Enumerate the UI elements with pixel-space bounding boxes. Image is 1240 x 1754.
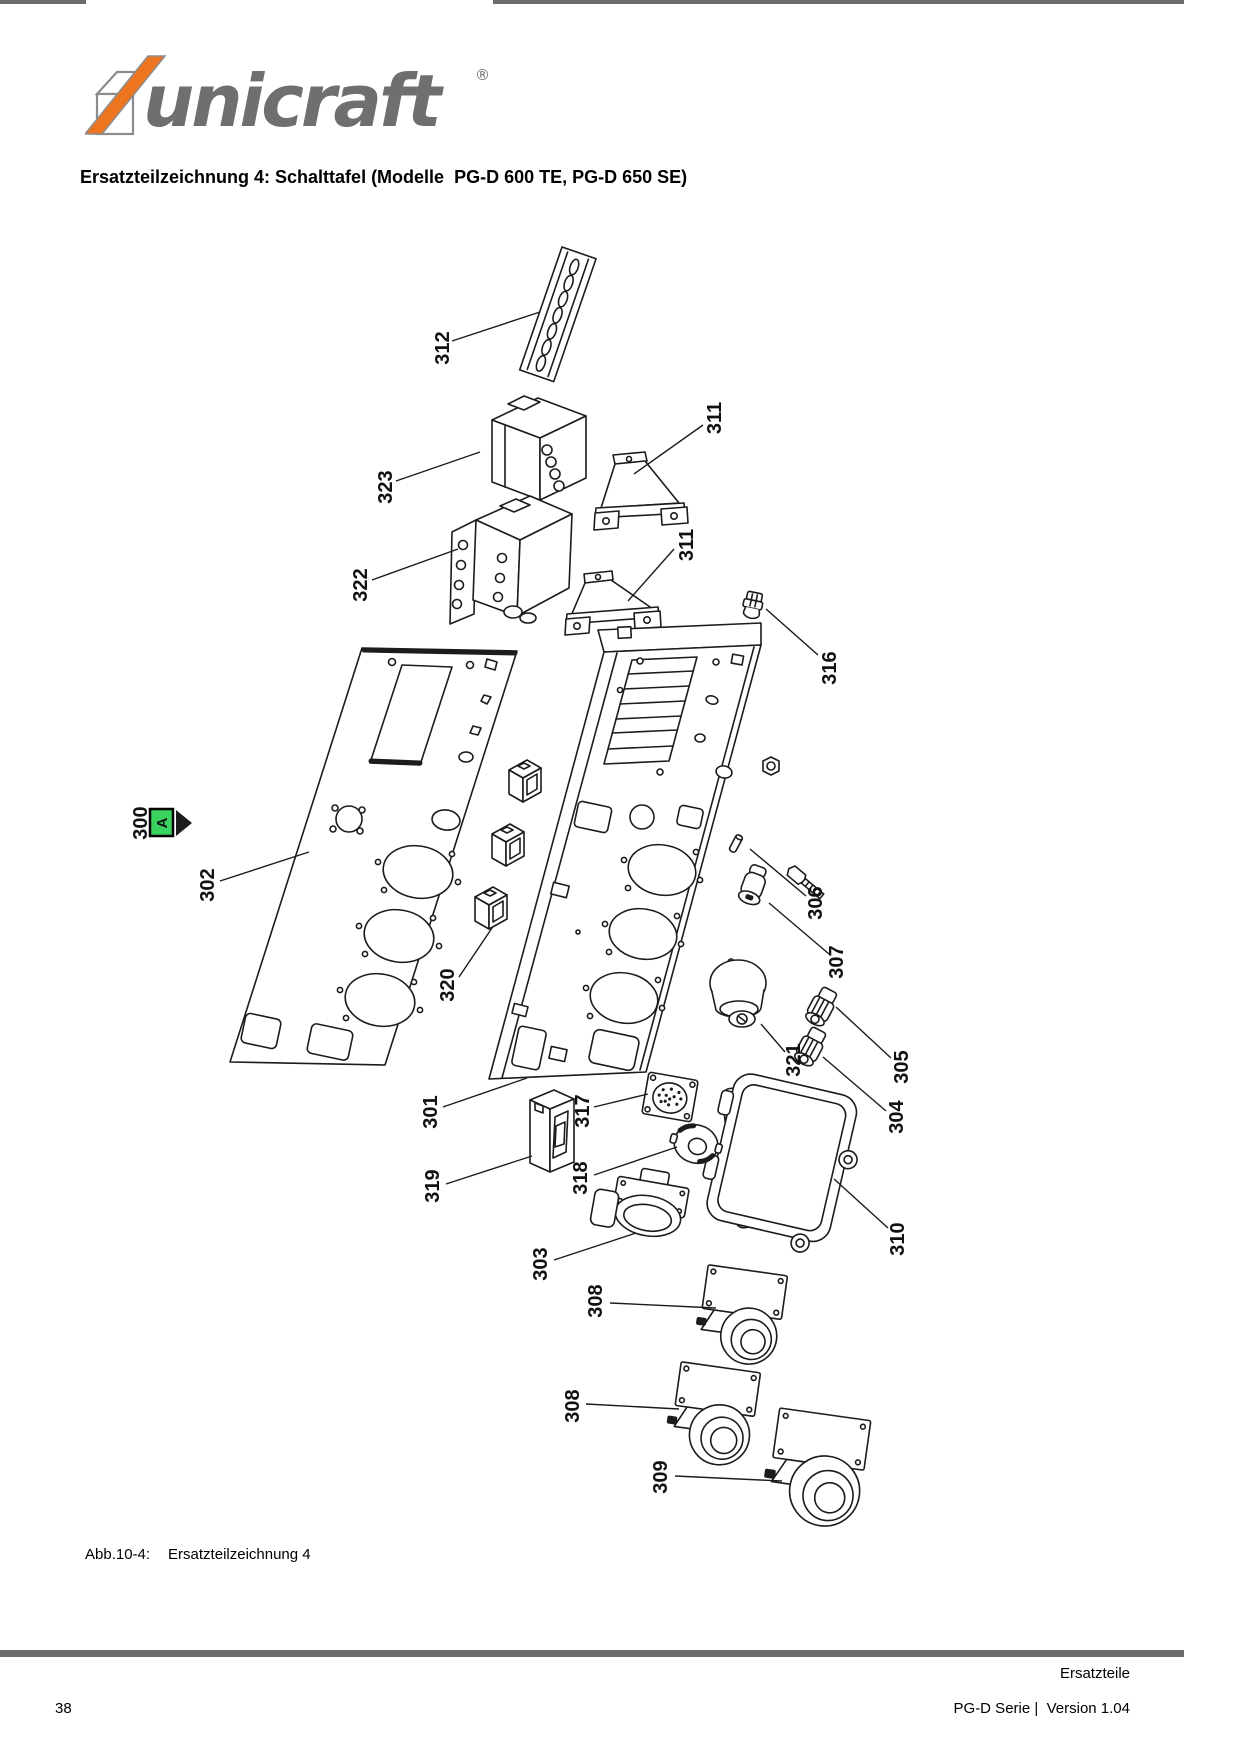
leader-line-305 (836, 1007, 891, 1058)
unicraft-logo: unicraft ® (85, 48, 505, 153)
footer-rule (0, 1650, 1184, 1657)
part-306-pin (729, 834, 744, 853)
exploded-view-diagram: 300 A 3123233113223113163023203063073213… (0, 0, 1240, 1754)
part-310-enclosure (691, 1068, 871, 1260)
part-308-socket-1 (691, 1264, 787, 1368)
part-label-303: 303 (530, 1247, 552, 1280)
part-label-308: 308 (585, 1284, 607, 1317)
marker-300-arrow (176, 810, 192, 836)
part-label-318: 318 (570, 1161, 592, 1194)
leader-line-310 (834, 1179, 888, 1228)
part-label-311: 311 (676, 529, 698, 561)
part-label-320: 320 (437, 968, 459, 1001)
leader-line-321 (761, 1024, 785, 1052)
leader-line-312 (452, 312, 540, 341)
leader-line-301 (443, 1078, 527, 1107)
part-label-310: 310 (887, 1222, 909, 1255)
part-label-321: 321 (783, 1043, 805, 1076)
part-320-switches (475, 760, 541, 929)
leader-line-311 (634, 425, 703, 474)
leader-line-319 (446, 1156, 532, 1184)
part-308-socket-2 (662, 1361, 761, 1469)
part-label-306: 306 (805, 886, 827, 919)
part-label-311: 311 (704, 402, 726, 434)
logo-wordmark: unicraft (143, 59, 444, 143)
leader-line-303 (554, 1233, 636, 1260)
leader-line-316 (766, 609, 818, 655)
figure-caption-label: Abb.10-4: (85, 1546, 150, 1563)
registered-mark-icon: ® (475, 66, 490, 84)
part-303-socket (589, 1161, 691, 1242)
leader-line-311 (628, 549, 674, 601)
leader-line-308 (586, 1404, 679, 1409)
leader-line-320 (459, 928, 492, 977)
leader-line-318 (594, 1147, 677, 1175)
part-label-302: 302 (197, 868, 219, 901)
part-label-319: 319 (422, 1169, 444, 1202)
footer-version-text: PG-D Serie | Version 1.04 (0, 1700, 1130, 1717)
part-label-316: 316 (819, 651, 841, 684)
part-label-305: 305 (891, 1050, 913, 1083)
page-title: Ersatzteilzeichnung 4: Schalttafel (Mode… (80, 167, 687, 188)
part-label-307: 307 (826, 945, 848, 978)
part-label-323: 323 (375, 470, 397, 503)
leader-line-308 (610, 1303, 716, 1308)
part-311-bracket-upper (594, 452, 688, 530)
marker-300-number: 300 (130, 806, 152, 839)
part-305-knob (803, 985, 840, 1029)
part-label-308: 308 (562, 1389, 584, 1422)
part-322-contactor (450, 496, 572, 624)
part-label-317: 317 (572, 1094, 594, 1127)
figure-caption: Abb.10-4: Ersatzteilzeichnung 4 (85, 1546, 311, 1563)
part-309-socket (758, 1407, 870, 1531)
part-hex-nut (763, 757, 779, 775)
marker-300-letter: A (154, 817, 171, 828)
part-label-301: 301 (420, 1095, 442, 1128)
manual-page: 300 A 3123233113223113163023203063073213… (0, 0, 1240, 1754)
footer-section-label: Ersatzteile (0, 1665, 1130, 1682)
header-rule-right (493, 0, 1184, 4)
part-316-clamp (741, 591, 765, 620)
part-label-312: 312 (432, 331, 454, 364)
leader-line-317 (594, 1094, 648, 1107)
part-label-304: 304 (886, 1099, 908, 1133)
part-323-contactor (492, 396, 586, 500)
part-317-connector (642, 1072, 699, 1122)
figure-caption-text: Ersatzteilzeichnung 4 (168, 1546, 311, 1563)
leader-line-323 (396, 452, 480, 481)
part-label-322: 322 (350, 568, 372, 601)
part-319-switch (530, 1090, 574, 1172)
marker-300: 300 A (130, 806, 192, 839)
header-rule-left (0, 0, 86, 4)
part-label-309: 309 (650, 1460, 672, 1493)
part-321-estop-button (710, 959, 766, 1027)
part-307-plug (737, 863, 771, 907)
part-302-front-panel (230, 648, 517, 1065)
leader-line-322 (372, 549, 458, 580)
